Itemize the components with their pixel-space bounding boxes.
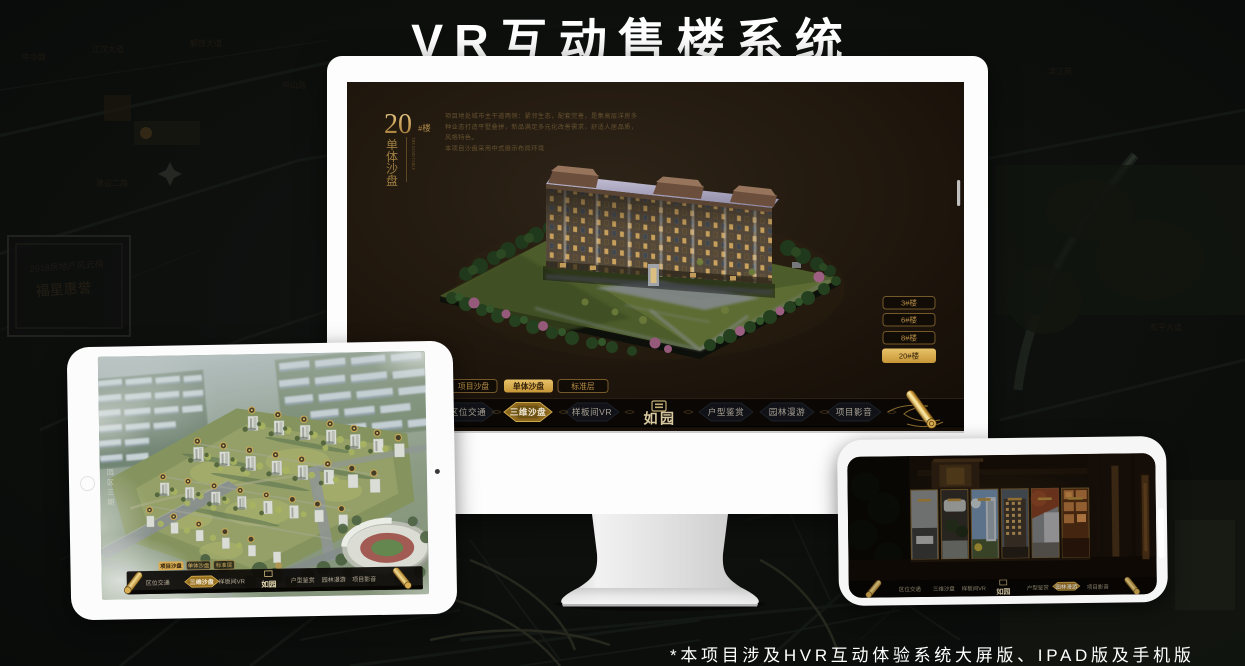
svg-text:和平大道: 和平大道: [1150, 322, 1182, 332]
svg-text:THE SAND TABLE: THE SAND TABLE: [411, 137, 416, 171]
svg-text:三: 三: [107, 489, 114, 497]
svg-text:建设二路: 建设二路: [96, 178, 128, 188]
svg-text:中山路: 中山路: [282, 80, 306, 90]
svg-text:项目地处城市主干道两侧：紧邻生态，配套完善，是集高层洋房多: 项目地处城市主干道两侧：紧邻生态，配套完善，是集高层洋房多: [445, 112, 638, 120]
svg-text:区: 区: [107, 479, 114, 487]
svg-text:如园: 如园: [644, 411, 677, 428]
svg-text:标准层: 标准层: [571, 381, 595, 391]
svg-text:本项目沙盘采用中式展示布局环境: 本项目沙盘采用中式展示布局环境: [445, 144, 545, 152]
svg-text:户型鉴赏: 户型鉴赏: [708, 406, 744, 417]
svg-text:#楼: #楼: [418, 123, 431, 133]
svg-text:如园: 如园: [261, 579, 277, 589]
svg-text:三维沙盘: 三维沙盘: [510, 406, 546, 417]
svg-text:种业态打造平墅叠拼，新品满足多元化改善需求，舒适人居品质，: 种业态打造平墅叠拼，新品满足多元化改善需求，舒适人居品质，: [445, 123, 638, 131]
svg-text:项目沙盘: 项目沙盘: [458, 381, 489, 391]
svg-text:20: 20: [384, 109, 412, 140]
svg-text:3#楼: 3#楼: [901, 298, 917, 308]
svg-text:20#楼: 20#楼: [899, 351, 920, 361]
svg-text:项目影音: 项目影音: [836, 406, 872, 417]
svg-text:园: 园: [107, 469, 114, 477]
svg-text:单体沙盘: 单体沙盘: [513, 381, 544, 391]
svg-text:标准层: 标准层: [216, 561, 233, 569]
svg-text:区位交通: 区位交通: [450, 406, 486, 417]
svg-text:园林漫游: 园林漫游: [769, 406, 805, 417]
svg-text:风格特色。: 风格特色。: [445, 134, 478, 142]
svg-text:样板间VR: 样板间VR: [572, 406, 612, 417]
svg-text:8#楼: 8#楼: [901, 333, 917, 343]
svg-text:期: 期: [107, 499, 114, 507]
svg-text:盘: 盘: [386, 173, 398, 188]
svg-text:6#楼: 6#楼: [901, 315, 917, 325]
